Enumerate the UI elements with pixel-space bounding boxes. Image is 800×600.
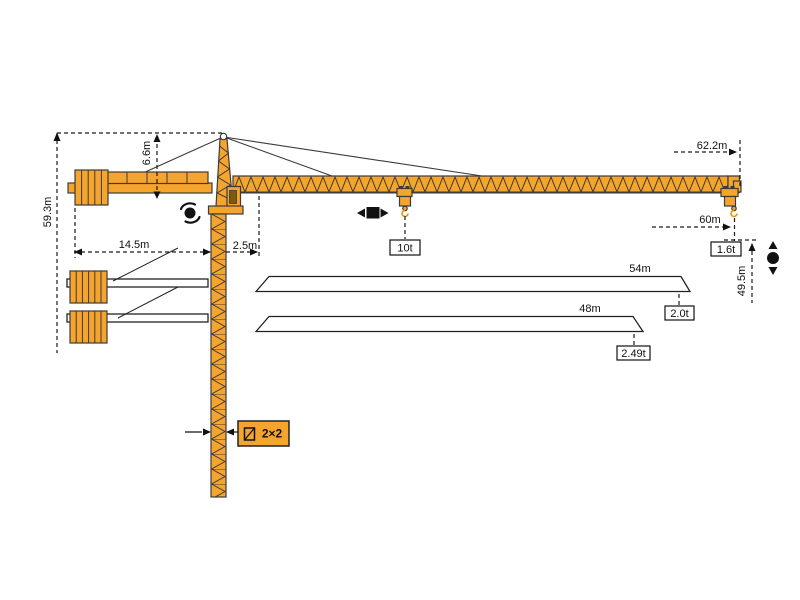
jib-variant-48m-outline: [256, 317, 643, 332]
crane-spec-diagram: 2×2 10t 1.6t 2.0t 2.49t 59.3m 6.6m 14.5m…: [0, 0, 800, 600]
label-rear-offset: 2.5m: [233, 240, 257, 252]
trolley-mid: [397, 186, 412, 217]
variant-1-leader-line: [113, 248, 178, 281]
label-working-radius: 60m: [699, 214, 720, 226]
arrow-mast-right: [226, 429, 234, 436]
trolley-travel-icon: [357, 207, 389, 219]
arrow-jib-reach-right: [729, 149, 737, 156]
label-total-height: 59.3m: [42, 197, 54, 228]
label-counter-jib-length: 14.5m: [119, 239, 150, 251]
hook-mid: [402, 211, 408, 217]
load-label-10t: 10t: [397, 243, 412, 255]
load-box-2-49t: 2.49t: [617, 346, 650, 360]
arrow-counter-jib-right: [203, 249, 211, 256]
trolley-tip: [721, 186, 738, 217]
load-label-2-49t: 2.49t: [621, 348, 645, 360]
jib-variant-54m-outline: [256, 277, 690, 292]
arrow-mast-left: [203, 429, 211, 436]
hook-tip: [731, 211, 737, 217]
load-box-10t: 10t: [390, 240, 420, 255]
arrow-counter-jib-left: [74, 249, 82, 256]
cab-window: [230, 191, 237, 204]
jib-pendant-rope-outer: [224, 137, 482, 176]
tower-mast: [211, 214, 226, 497]
main-jib-lattice: [233, 176, 728, 193]
counter-jib-pendant-rope: [143, 137, 223, 173]
mast-section-callout: 2×2: [185, 421, 289, 446]
arrow-working-radius-right: [723, 224, 731, 231]
load-box-1-6t: 1.6t: [711, 242, 741, 256]
slewing-platform: [209, 206, 244, 214]
slewing-icon: [181, 203, 200, 222]
load-label-1-6t: 1.6t: [717, 244, 735, 256]
label-tower-head-height: 6.6m: [141, 141, 153, 165]
hoist-icon: [767, 241, 779, 275]
counter-jib-variant-1: [67, 248, 208, 303]
label-jib-reach: 62.2m: [697, 140, 728, 152]
label-jib-54m: 54m: [629, 263, 650, 275]
jib-pendant-rope-inner: [224, 137, 332, 176]
arrow-hook-height-up: [749, 243, 756, 251]
diagram-canvas: 2×2 10t 1.6t 2.0t 2.49t 59.3m 6.6m 14.5m…: [0, 0, 800, 600]
arrow-tower-head-down: [154, 192, 161, 200]
arrow-total-height-up: [54, 133, 61, 142]
tower-apex-pin: [220, 133, 226, 139]
counterweight-block: [75, 170, 108, 205]
label-hook-height: 49.5m: [736, 266, 748, 297]
operator-cab: [227, 187, 241, 207]
label-jib-48m: 48m: [579, 303, 600, 315]
load-box-2-0t: 2.0t: [665, 306, 694, 320]
arrow-tower-head-up: [154, 134, 161, 142]
mast-section-label: 2×2: [262, 427, 283, 441]
load-label-2-0t: 2.0t: [670, 308, 688, 320]
